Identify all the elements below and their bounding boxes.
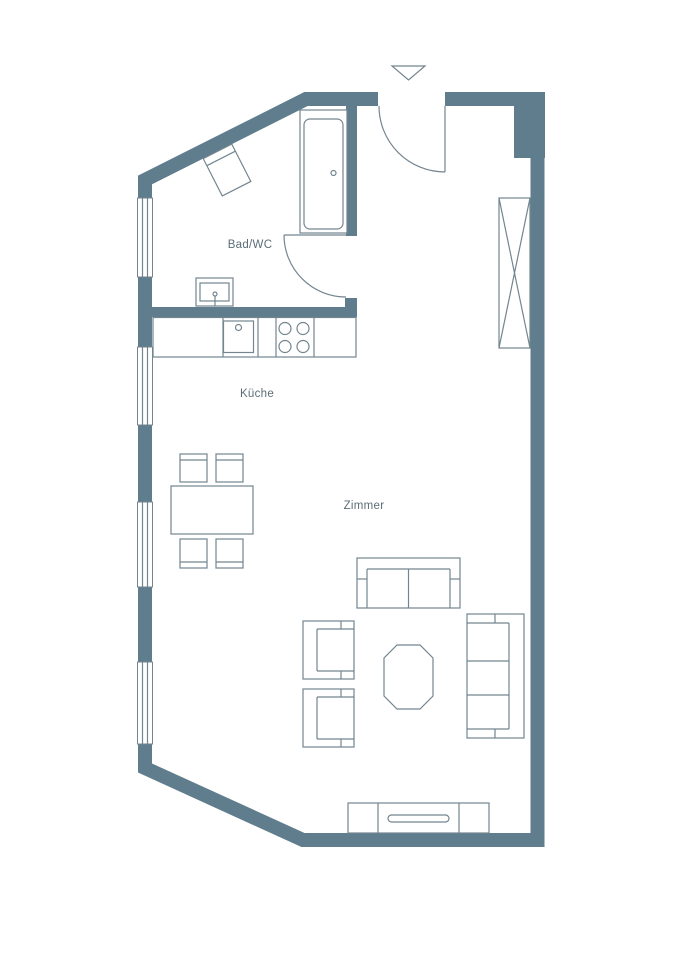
window-icon: [138, 502, 153, 587]
dining-chair-icon: [216, 454, 243, 482]
dining-chair-icon: [180, 454, 207, 482]
bathtub-icon: [300, 110, 347, 233]
kitchen-wall: [152, 307, 357, 317]
coffee-table-icon: [384, 645, 433, 709]
dining-chair-icon: [180, 539, 207, 568]
window-icon: [138, 198, 153, 277]
kitchen-countertop: [153, 318, 356, 358]
dining-table-icon: [171, 486, 253, 534]
dining-chair-icon: [216, 539, 243, 568]
washbasin-icon: [196, 278, 233, 306]
living-room-label: Zimmer: [344, 500, 385, 512]
sideboard-icon: [348, 803, 489, 833]
armchair-icon: [303, 689, 354, 747]
entrance-marker-triangle-icon: [392, 66, 425, 80]
armchair-icon: [303, 621, 354, 679]
wall-thick-top-right: [514, 92, 545, 158]
bathroom-door-icon: [284, 235, 346, 297]
two-seat-sofa-icon: [357, 558, 460, 608]
entrance-door-icon: [379, 66, 445, 172]
window-icon: [138, 662, 153, 744]
three-seat-sofa-icon: [467, 614, 524, 738]
floorplan-svg: Bad/WC Küche Zimmer: [0, 0, 679, 960]
kitchen-label: Küche: [240, 388, 274, 400]
bathroom-label: Bad/WC: [228, 239, 273, 251]
floorplan-page: Bad/WC Küche Zimmer: [0, 0, 679, 960]
window-icon: [138, 347, 153, 425]
wardrobe-icon: [499, 198, 530, 348]
bathroom-right-wall: [346, 106, 357, 236]
